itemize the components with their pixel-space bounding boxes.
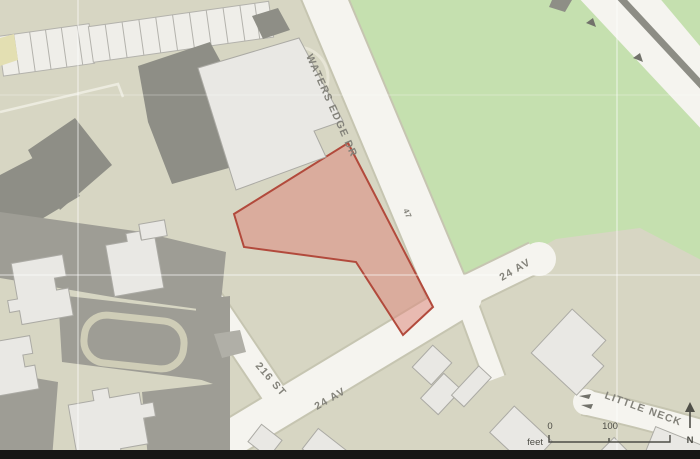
road-intersection (440, 275, 482, 317)
scale-tick-100: 100 (602, 421, 618, 432)
north-label: N (687, 435, 694, 446)
scale-tick-0: 0 (547, 421, 552, 432)
parking-lot (142, 382, 230, 459)
letterbox-bar (0, 450, 700, 459)
map-viewport[interactable]: WATERS EDGE DR 47 24 AV 216 ST 24 AV LIT… (0, 0, 700, 459)
parcel-map: WATERS EDGE DR 47 24 AV 216 ST 24 AV LIT… (0, 0, 700, 459)
scale-unit-label: feet (527, 437, 543, 448)
